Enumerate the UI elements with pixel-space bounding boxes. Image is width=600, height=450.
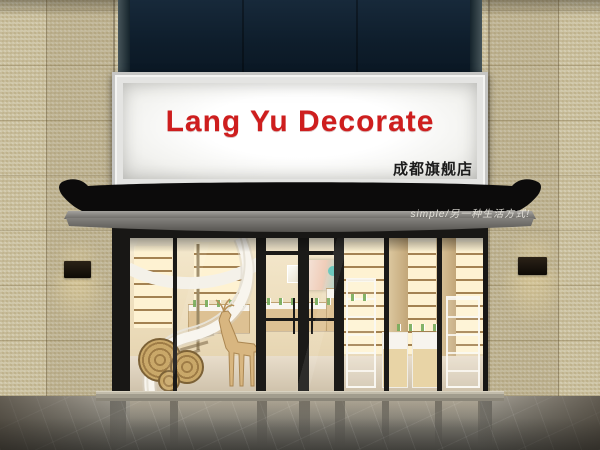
- awning-valance: [66, 218, 534, 232]
- entry-threshold: [96, 391, 504, 401]
- storefront-frame: [112, 228, 488, 396]
- glass-reflection: [130, 238, 483, 392]
- shop-interior: [130, 238, 483, 392]
- sconce-glow-right: [498, 266, 568, 328]
- wall-sconce-left: [64, 261, 91, 278]
- sconce-glow-left: [46, 270, 110, 328]
- panel-jamb-left: [118, 0, 130, 80]
- awning: simple/另一种生活方式!: [58, 172, 542, 238]
- panel-jamb-right: [470, 0, 482, 80]
- sign-title: Lang Yu Decorate: [115, 105, 485, 139]
- awning-slogan: simple/另一种生活方式!: [411, 205, 530, 220]
- storefront-render: Lang Yu Decorate 成都旗舰店 simple/另一种生活方式!: [0, 0, 600, 450]
- dark-fascia-panel: [130, 0, 470, 80]
- floor-vignette: [0, 418, 600, 450]
- sconce-upglow-right: [504, 232, 562, 260]
- wall-sconce-right: [518, 257, 547, 275]
